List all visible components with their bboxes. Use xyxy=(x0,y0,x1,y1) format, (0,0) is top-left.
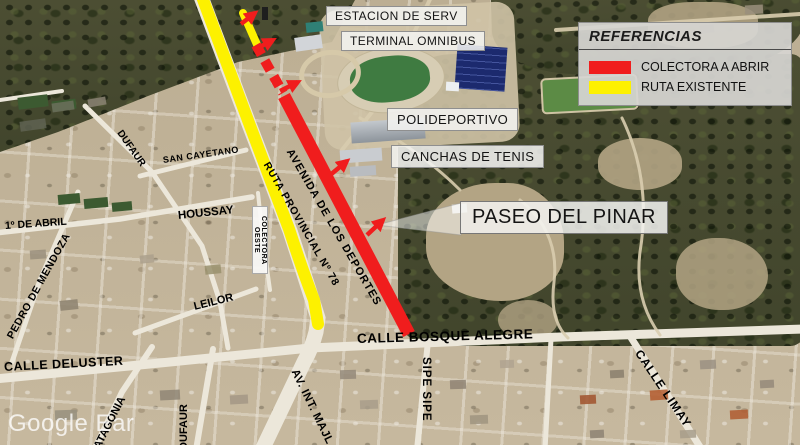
legend-item-existente: RUTA EXISTENTE xyxy=(579,77,791,97)
legend-title: REFERENCIAS xyxy=(579,23,791,50)
label-terminal-omnibus: TERMINAL OMNIBUS xyxy=(341,31,485,51)
google-earth-watermark: Google Ear xyxy=(8,410,134,438)
red-arrow-paseo xyxy=(367,220,383,235)
legend-swatch-red xyxy=(589,61,631,74)
street-label-sipe-sipe: SIPE SIPE xyxy=(420,357,432,422)
label-canchas-de-tenis: CANCHAS DE TENIS xyxy=(391,145,544,168)
legend-item-label: COLECTORA A ABRIR xyxy=(641,60,769,74)
paseo-callout-arrow xyxy=(377,203,461,235)
red-arrow-canchas xyxy=(329,161,347,176)
street-label-colectora-oeste: COLECTORA OESTE xyxy=(252,206,268,274)
legend-item-colectora: COLECTORA A ABRIR xyxy=(579,57,791,77)
legend-item-label: RUTA EXISTENTE xyxy=(641,80,746,94)
label-polideportivo: POLIDEPORTIVO xyxy=(387,108,518,131)
map-legend: REFERENCIAS COLECTORA A ABRIR RUTA EXIST… xyxy=(578,22,792,106)
label-paseo-del-pinar: PASEO DEL PINAR xyxy=(460,201,668,234)
legend-swatch-yellow xyxy=(589,81,631,94)
route-colectora-dashed xyxy=(256,45,283,93)
street-label-dufaur-south: DUFAUR xyxy=(178,404,190,445)
annotated-satellite-map: ESTACION DE SERV TERMINAL OMNIBUS POLIDE… xyxy=(0,0,800,445)
label-estacion-de-servicio: ESTACION DE SERV xyxy=(326,6,467,26)
